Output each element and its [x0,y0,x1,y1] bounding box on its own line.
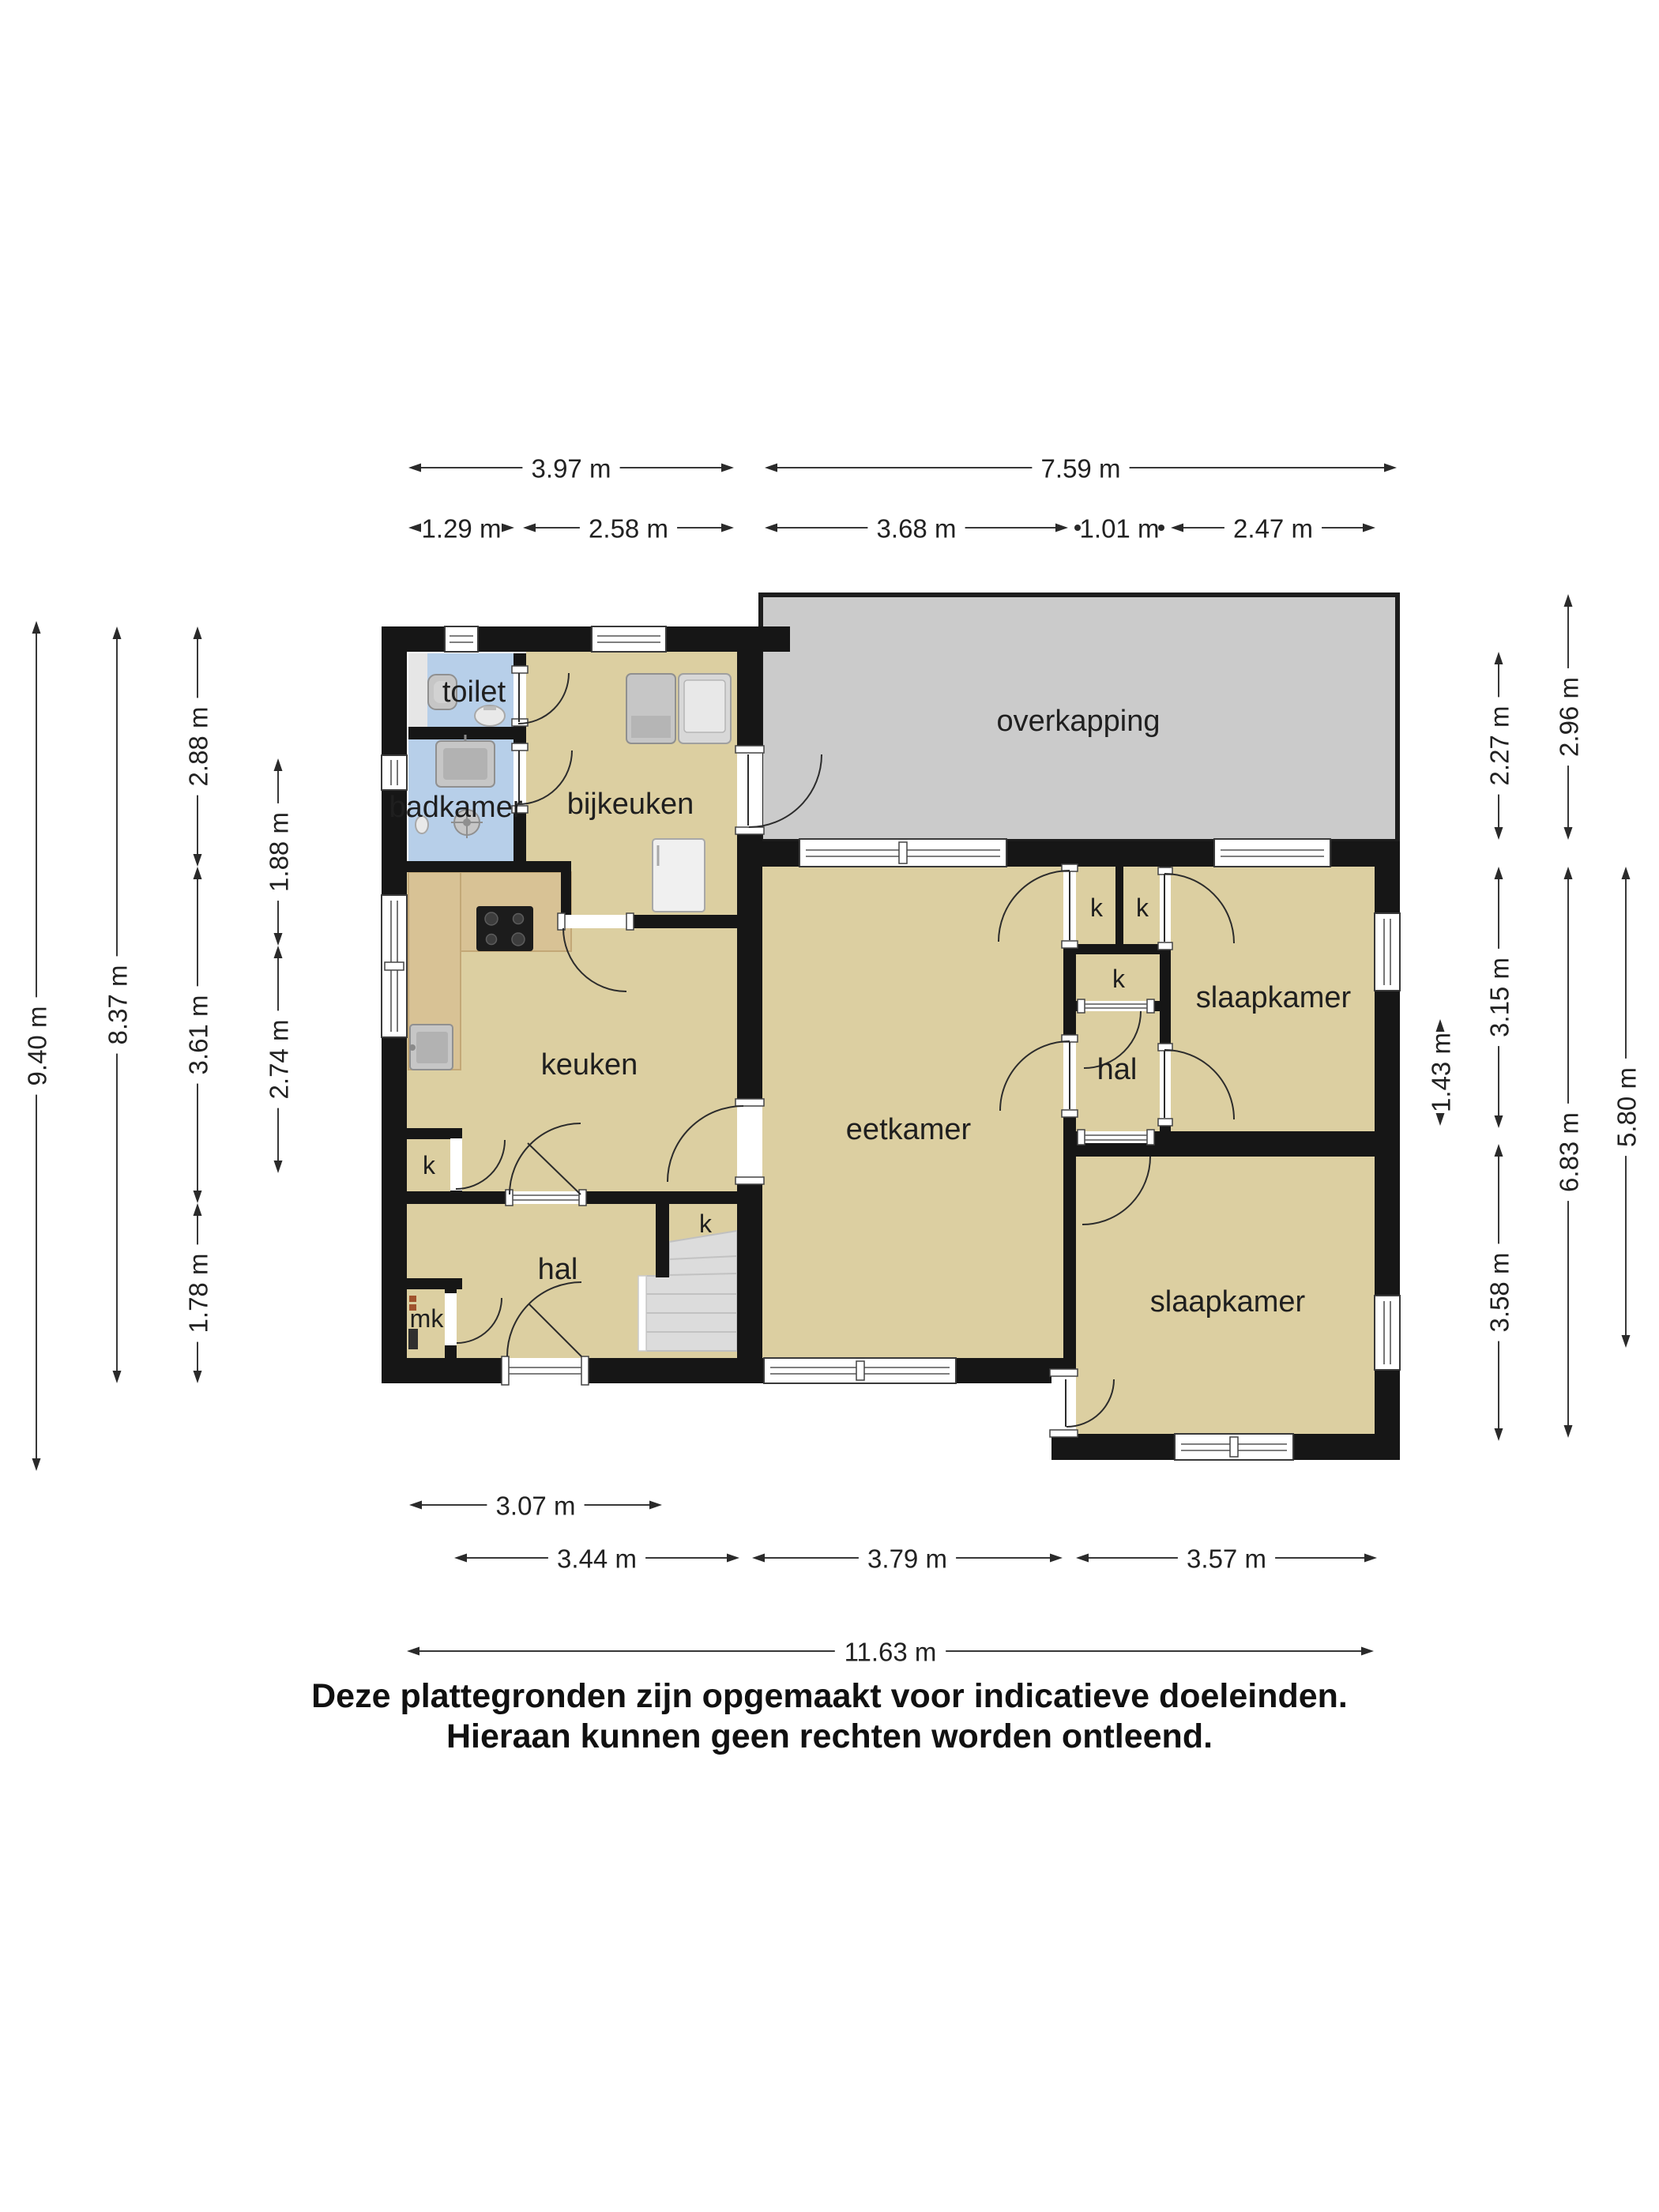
window-slaapkamer-oost [1375,913,1400,991]
dimension-v: 6.83 m [1555,867,1584,1438]
koelkast-icon [653,839,705,912]
window-eetkamer-noord [799,839,1006,867]
dimension-label: 5.80 m [1612,1067,1642,1147]
window-slaapkamer-noord [1214,839,1330,867]
dimension-label: 6.83 m [1555,1112,1584,1192]
spoelbak-icon [409,1025,453,1070]
window-eetkamer-zuid [764,1358,956,1383]
dimension-label: 3.58 m [1485,1253,1514,1333]
room-label-mk: mk [410,1304,445,1333]
dimension-label: 3.57 m [1187,1544,1266,1574]
window-bijkeuken [592,626,666,652]
droger-icon [679,674,731,743]
dimension-h: 11.63 m [407,1638,1374,1667]
dimension-label: 9.40 m [23,1006,52,1086]
dimension-v: 8.37 m [103,626,133,1383]
dimension-label: 3.15 m [1485,957,1514,1037]
room-label-eetkamer: eetkamer [846,1113,972,1146]
wastafel-icon [436,735,495,787]
dimension-v: 2.88 m [184,626,213,867]
dimension-v: 2.74 m [265,946,294,1173]
dimension-label: 2.47 m [1233,514,1313,544]
dimension-v: 1.78 m [184,1203,213,1383]
room-label-kast-links: k [1090,893,1104,922]
room-label-overkapping: overkapping [996,705,1160,738]
dimension-label: 1.78 m [184,1254,213,1334]
dimension-label: 1.29 m [422,514,502,544]
dimension-h: 7.59 m [765,454,1397,483]
dimension-v: 1.88 m [265,758,294,946]
floorplan-page: { "footer": { "line1": "Deze plattegrond… [0,0,1659,2212]
dimension-v: 2.27 m [1485,652,1514,840]
dimension-label: 1.43 m [1427,1033,1456,1112]
dimension-label: 3.44 m [557,1544,637,1574]
dimension-label: 3.68 m [877,514,957,544]
disclaimer-line2: Hieraan kunnen geen rechten worden ontle… [0,1717,1659,1757]
room-label-kast-midden: k [1112,965,1126,993]
dimension-v: 3.61 m [184,867,213,1203]
kookplaat-icon [476,906,533,951]
dimension-label: 11.63 m [845,1638,937,1667]
dimension-label: 3.97 m [532,454,611,483]
disclaimer: Deze plattegronden zijn opgemaakt voor i… [0,1676,1659,1757]
dimension-label: 2.96 m [1555,677,1584,757]
dimension-label: 2.27 m [1485,706,1514,786]
window-keuken [382,895,407,1037]
dimension-v: 3.15 m [1485,867,1514,1128]
dimension-h: 3.07 m [409,1492,662,1521]
room-label-kast-rechts: k [1136,893,1149,922]
room-label-badkamer: badkamer [389,791,523,824]
dimension-v: 1.43 m [1427,1019,1456,1126]
dimension-h: 3.79 m [752,1544,1063,1574]
toilet-niche [408,653,427,727]
dimension-label: 2.58 m [589,514,668,544]
room-label-toilet: toilet [442,675,506,709]
dimension-v: 5.80 m [1612,867,1642,1348]
dimension-label: 3.79 m [867,1544,947,1574]
disclaimer-line1: Deze plattegronden zijn opgemaakt voor i… [0,1676,1659,1717]
dimension-h: 3.97 m [408,454,734,483]
dimension-h: 3.57 m [1076,1544,1377,1574]
room-label-slaapkamer-boven: slaapkamer [1196,981,1352,1014]
room-label-hal-left: hal [538,1253,578,1286]
dimension-v: 3.58 m [1485,1144,1514,1441]
dimension-label: 1.01 m [1080,514,1160,544]
dimension-label: 3.07 m [496,1492,576,1521]
dimension-label: 3.61 m [184,995,213,1075]
window-slaapkamer-onder-oost [1375,1296,1400,1370]
window-badkamer [382,755,407,790]
dimension-label: 8.37 m [103,965,133,1045]
dimension-label: 7.59 m [1041,454,1121,483]
floorplan-drawing: toiletbadkamerbijkeukenkeukenhalmkkkeetk… [0,0,1659,2212]
room-label-bijkeuken: bijkeuken [567,788,694,821]
dimension-h: 1.29 m [408,514,514,544]
dimension-h: 3.44 m [454,1544,739,1574]
dimension-label: 2.88 m [184,707,213,787]
room-label-kast-keuken: k [423,1151,436,1179]
dimension-h: 1.01 m [1074,514,1164,544]
dimension-v: 2.96 m [1555,594,1584,840]
room-label-keuken: keuken [541,1048,638,1082]
room-label-hal-right: hal [1097,1053,1138,1086]
dimension-label: 2.74 m [265,1020,294,1100]
dimension-label: 1.88 m [265,812,294,892]
window-toilet [445,626,478,652]
dimension-h: 2.58 m [523,514,734,544]
room-label-slaapkamer-onder: slaapkamer [1150,1285,1306,1319]
room-label-kast-trap: k [699,1209,713,1238]
window-slaapkamer-zuid [1175,1434,1293,1460]
eetkamer-floor [762,841,1063,1358]
dimension-h: 3.68 m [765,514,1068,544]
dimension-h: 2.47 m [1171,514,1375,544]
dimension-v: 9.40 m [23,621,52,1471]
wasmachine-icon [626,674,675,743]
